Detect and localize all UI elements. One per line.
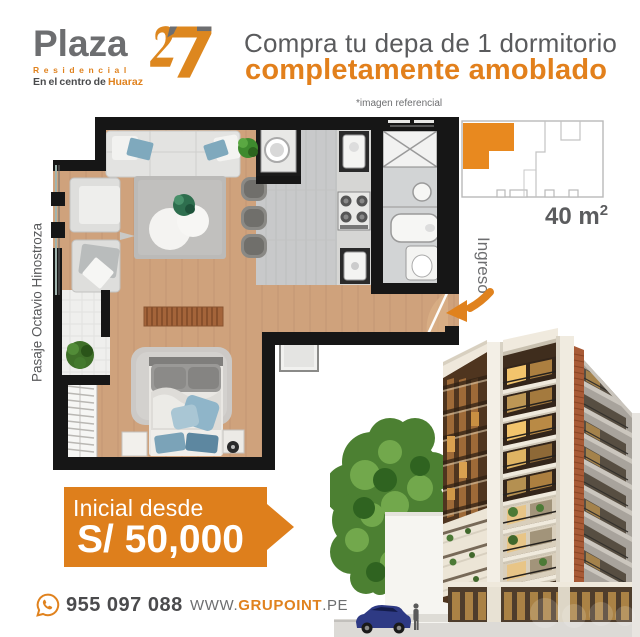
svg-text:Ingreso: Ingreso	[474, 237, 493, 294]
